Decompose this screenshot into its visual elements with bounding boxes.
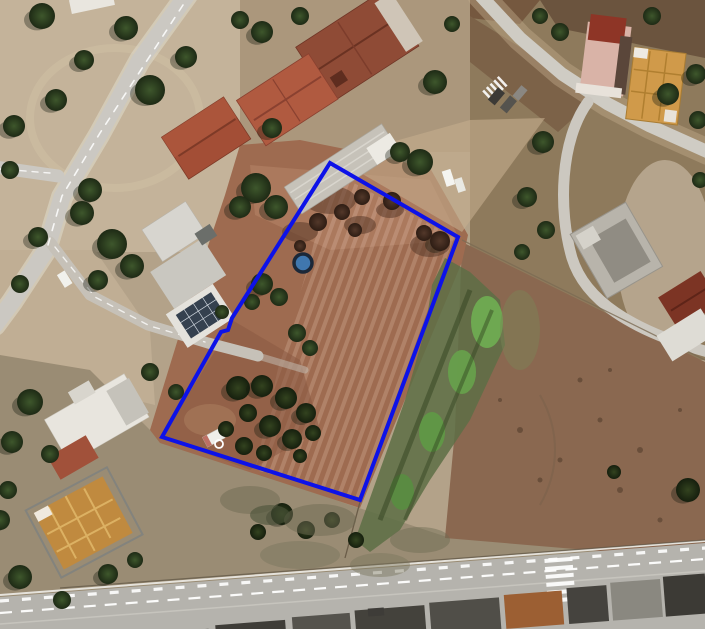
tree [532,131,554,153]
tree [11,275,29,293]
tree [88,270,108,290]
tree [430,231,450,251]
tree [3,115,25,137]
tree [229,196,251,218]
tree [135,75,165,105]
tree [416,225,432,241]
tree [291,7,309,25]
tree [239,404,257,422]
tree [288,324,306,342]
tree [141,363,159,381]
tree [264,195,288,219]
tree [296,403,316,423]
tree [98,564,118,584]
tree [218,421,234,437]
tree [532,8,548,24]
tree [251,375,273,397]
tree [514,244,530,260]
tree [231,11,249,29]
tree [282,429,302,449]
satellite-basemap [0,0,705,629]
tree [53,591,71,609]
tree [250,524,266,540]
tree [114,16,138,40]
tree [444,16,460,32]
tree [537,221,555,239]
tree [259,415,281,437]
tree [643,7,661,25]
tree [1,431,23,453]
tree [17,389,43,415]
parcel-marker-dot[interactable] [294,254,312,272]
tree [168,384,184,400]
tree [215,305,229,319]
tree [334,204,350,220]
tree [74,50,94,70]
tree [293,449,307,463]
tree [235,437,253,455]
tree [294,240,306,252]
tree [1,161,19,179]
tree [348,532,364,548]
tree [407,149,433,175]
tree [302,340,318,356]
tree [256,445,272,461]
tree [676,478,700,502]
satellite-map-view[interactable] [0,0,705,629]
tree [305,425,321,441]
tree [390,142,410,162]
tree [309,213,327,231]
tree [517,187,537,207]
tree [262,118,282,138]
tree [8,565,32,589]
tree [657,83,679,105]
tree [45,89,67,111]
tree [607,465,621,479]
tree [28,227,48,247]
tree [78,178,102,202]
tree [29,3,55,29]
building-orange [626,47,686,125]
tree [175,46,197,68]
tree [348,223,362,237]
tree [97,229,127,259]
tree [270,288,288,306]
tree [41,445,59,463]
car-highway [368,607,385,616]
tree [423,70,447,94]
tree [551,23,569,41]
tree [120,254,144,278]
tree [251,21,273,43]
tree [70,201,94,225]
tree [127,552,143,568]
tree [275,387,297,409]
tree [354,189,370,205]
